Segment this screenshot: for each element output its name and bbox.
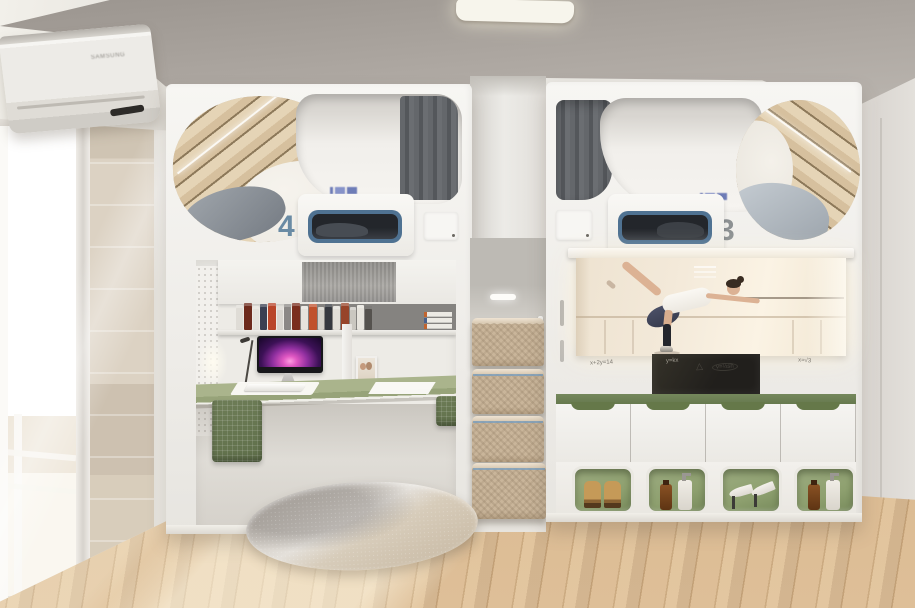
shoe-cubby (720, 466, 782, 514)
studio-cabinet-line (792, 320, 794, 354)
wire-basket (212, 400, 262, 462)
screen-glare (806, 258, 846, 356)
pod-upper-opening (296, 94, 462, 204)
ac-vent (110, 104, 145, 116)
book-row (236, 304, 388, 330)
bed-pod-4: 4 (166, 84, 472, 534)
indicator-dot (586, 234, 589, 237)
curtain (400, 96, 458, 200)
ceiling-light-panel (456, 0, 575, 24)
blanket (657, 222, 704, 238)
stacked-books (424, 312, 452, 330)
cabinet-handle-notch (560, 300, 564, 326)
capsule-window-glass (312, 214, 398, 239)
stair-drawers (470, 238, 546, 532)
desk-lamp (245, 340, 254, 384)
bookshelf (218, 330, 456, 335)
whiteboard-scribble: x=√3 (798, 358, 812, 365)
capsule-window-glass (622, 215, 708, 240)
door-handle-notch (571, 402, 615, 410)
projector-screen (576, 258, 846, 356)
overhead-cabinet (218, 260, 456, 304)
bed-pod-3: 3 (546, 82, 862, 522)
book-spine (365, 306, 372, 330)
desk-divider (342, 324, 352, 382)
desk-lamp-head (240, 337, 251, 344)
door-handle-notch (646, 402, 690, 410)
pump-bottle (678, 480, 692, 510)
heel-stem (754, 494, 757, 507)
book-spine (325, 304, 332, 330)
book-spine (292, 303, 300, 330)
dancer-knee-sock (663, 324, 671, 348)
book-spine (309, 304, 317, 330)
ac-brand-label: SAMSUNG (91, 52, 126, 61)
pump-bottle (826, 480, 840, 510)
book-spine (244, 303, 252, 330)
imac-screen-wallpaper (259, 338, 321, 367)
drawer-step (472, 318, 544, 366)
bed-number: 4 (278, 212, 295, 242)
wall-seam (880, 118, 882, 498)
door-handle-notch (721, 402, 765, 410)
keyboard (244, 384, 306, 391)
whiteboard-scribble: x+2y=14 (590, 359, 613, 366)
whiteboard-scribble: △ (696, 361, 703, 372)
book-spine (253, 306, 259, 330)
alcove-ceiling-shade (470, 76, 546, 96)
room-scene: SAMSUNG 4 (0, 0, 915, 608)
book-spine (301, 306, 308, 330)
book-spine (333, 306, 340, 330)
dancer-back-leg (621, 260, 663, 297)
ac-unit: SAMSUNG (0, 24, 162, 135)
switch-panel (424, 212, 458, 240)
sliding-glass-door (0, 114, 172, 604)
studio-cabinet-line (632, 320, 634, 354)
book-spine (318, 307, 324, 330)
cabinet-handle-notch (560, 340, 564, 362)
drawer-step (472, 416, 544, 462)
shoe-cubby (572, 466, 634, 514)
door-handle-notch (796, 402, 840, 410)
cabinet-doors (556, 404, 856, 462)
lamp-glow (198, 338, 228, 386)
paper-sheet (368, 382, 435, 394)
pod-base (546, 513, 862, 522)
blanket (316, 223, 368, 237)
book-spine (284, 304, 291, 330)
studio-cabinet-line (604, 320, 606, 354)
bottle (808, 484, 820, 510)
pod-circle-opening (734, 98, 863, 242)
step-light (490, 294, 516, 300)
screen-caption (694, 266, 716, 268)
imac (257, 336, 323, 373)
heel-stem (732, 496, 735, 509)
book-spine (357, 305, 364, 330)
book-spine (268, 303, 276, 330)
screen-roller (568, 248, 854, 258)
dancer-hair-bun (737, 276, 744, 283)
shoe-cubby (794, 466, 856, 514)
bottle (660, 484, 672, 510)
dancer-shoe (660, 346, 673, 352)
open-cubby (302, 262, 396, 302)
book-spine (277, 307, 283, 330)
dancer-pointed-foot (606, 279, 617, 289)
capsule-window (308, 210, 402, 243)
whiteboard-scribble: y=kx (666, 358, 679, 365)
screen-glare (576, 258, 590, 356)
drawer-step (472, 463, 546, 519)
boots (604, 481, 621, 508)
book-spine (236, 305, 243, 330)
capsule-window-unit (298, 194, 414, 256)
glass-reflection (0, 114, 172, 604)
book-spine (260, 304, 267, 330)
brand-mark (330, 187, 366, 194)
drawer-step (472, 369, 544, 414)
shoe-cubby (646, 466, 708, 514)
switch-panel (556, 210, 592, 240)
boots (584, 481, 601, 508)
wire-basket (436, 396, 456, 426)
indicator-dot (452, 234, 455, 237)
capsule-window (618, 211, 712, 244)
